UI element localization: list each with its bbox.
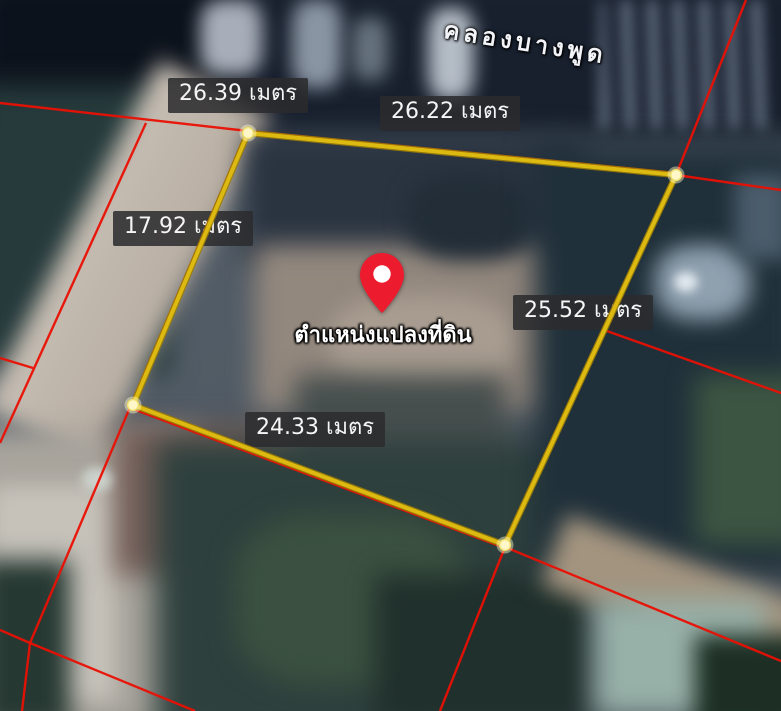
measurement-label-top-right: 26.22 เมตร [380, 96, 520, 131]
measurement-label-bottom: 24.33 เมตร [245, 412, 385, 447]
map-canvas[interactable]: คลองบางพูด 26.39 เมตร 26.22 เมตร 17.92 เ… [0, 0, 781, 711]
location-pin-icon[interactable] [359, 252, 405, 314]
pin-label: ตำแหน่งแปลงที่ดิน [294, 317, 471, 352]
measurement-label-top-left: 26.39 เมตร [168, 78, 308, 113]
measurement-label-right: 25.52 เมตร [513, 295, 653, 330]
measurement-label-left: 17.92 เมตร [113, 211, 253, 246]
